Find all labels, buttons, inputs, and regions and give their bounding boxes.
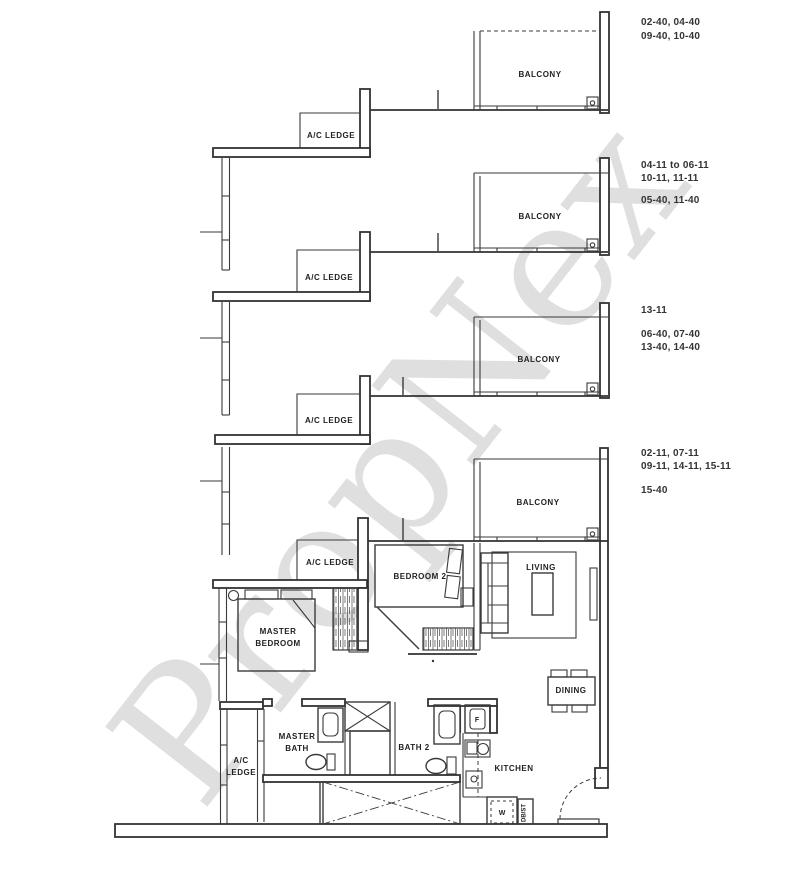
master-bath-label-1: MASTER <box>279 732 316 741</box>
anno-g3-line3: 13-40, 14-40 <box>641 342 700 353</box>
master-bedroom-top-wall <box>213 580 367 588</box>
db-st-label: DB/ST <box>522 804 528 822</box>
entrance <box>558 768 608 825</box>
balcony-3-label: BALCONY <box>517 355 560 364</box>
mb-bed-fold <box>293 600 315 628</box>
living-label: LIVING <box>526 563 556 572</box>
master-bedroom-label-1: MASTER <box>260 627 297 636</box>
dining-area: DINING <box>548 670 595 712</box>
master-bath-label-2: BATH <box>285 744 309 753</box>
balcony-1-fixture <box>587 97 598 109</box>
bedroom2-label: BEDROOM 2 <box>394 572 447 581</box>
mbath-door-jamb <box>263 699 272 706</box>
dining-chair-4 <box>572 705 587 712</box>
bath2-cistern <box>447 757 456 774</box>
right-wall-4 <box>600 448 608 768</box>
mbath-toilet <box>306 755 326 770</box>
floorplan-page: PropNex BALCONY A/C LEDGE <box>0 0 800 877</box>
ac-ledge-2-outline <box>297 250 360 292</box>
anno-g1-line2: 09-40, 10-40 <box>641 31 700 42</box>
wall-post-2 <box>360 232 370 301</box>
bath2-toilet <box>426 759 446 774</box>
bedroom-2: BEDROOM 2 <box>375 543 480 662</box>
master-bedroom: MASTER BEDROOM <box>200 588 368 701</box>
corridor-dot <box>432 660 434 662</box>
bath-2: BATH 2 <box>398 705 460 774</box>
b2-wardrobe <box>423 628 473 650</box>
shower-box <box>350 731 390 780</box>
anno-g2-line3: 05-40, 11-40 <box>641 195 700 206</box>
thick-wall-2 <box>213 292 370 301</box>
section-1-outline: BALCONY A/C LEDGE <box>213 12 609 157</box>
mbath-sink <box>323 713 338 736</box>
ac-ledge-3-label: A/C LEDGE <box>305 416 353 425</box>
anno-g4-line1: 02-11, 07-11 <box>641 448 699 459</box>
ac-ledge-4-label: A/C LEDGE <box>306 558 354 567</box>
kitchen-label: KITCHEN <box>494 764 533 773</box>
b2-pillow-1 <box>447 548 463 573</box>
balcony-2-label: BALCONY <box>518 212 561 221</box>
floorplan-drawing: BALCONY A/C LEDGE BALCONY A/C LEDGE <box>0 0 800 877</box>
bath-bottom-wall <box>263 775 460 782</box>
balcony-2-fixture <box>587 239 598 251</box>
ledge-top-wall <box>220 702 263 709</box>
thick-wall-1 <box>213 148 370 157</box>
kitchen-sink-bowl <box>467 742 477 754</box>
anno-g2-line1: 04-11 to 06-11 <box>641 160 709 171</box>
anno-g3-line2: 06-40, 07-40 <box>641 329 700 340</box>
ac-ledge-2-label: A/C LEDGE <box>305 273 353 282</box>
balcony-4-label: BALCONY <box>516 498 559 507</box>
ac-ledge-3-outline <box>297 394 360 435</box>
mb-pillow-1 <box>245 590 278 599</box>
mbath-cistern <box>327 754 335 770</box>
unit-annotations: 02-40, 04-40 09-40, 10-40 04-11 to 06-11… <box>641 17 731 496</box>
b2-door-leaf <box>377 607 419 649</box>
kitchen-hob-burner <box>471 776 477 782</box>
living-sofa <box>481 553 508 633</box>
anno-g2-line2: 10-11, 11-11 <box>641 173 699 184</box>
anno-g4-line2: 09-11, 14-11, 15-11 <box>641 461 731 472</box>
master-bedroom-label-2: BEDROOM <box>255 639 300 648</box>
ac-ledge-bottom: A/C LEDGE <box>221 709 265 824</box>
living-room: LIVING <box>481 552 597 638</box>
kitchen-sink-round <box>478 744 489 755</box>
bath2-sink <box>439 711 455 738</box>
dining-chair-1 <box>551 670 567 677</box>
wall-post-3 <box>360 376 370 444</box>
balcony-1-label: BALCONY <box>518 70 561 79</box>
section-2-outline: BALCONY A/C LEDGE <box>200 158 609 301</box>
living-coffee-table <box>532 573 553 615</box>
balcony-3-fixture <box>587 383 598 395</box>
kitchen-hob <box>466 771 482 788</box>
right-wall-1 <box>600 12 609 113</box>
mb-corner-fixture <box>229 591 239 601</box>
b2-pillow-2 <box>445 575 461 598</box>
master-bath: MASTER BATH <box>279 708 345 775</box>
section-3-outline: BALCONY A/C LEDGE <box>200 302 609 444</box>
ac-ledge-1-label: A/C LEDGE <box>307 131 355 140</box>
ac-ledge-bottom-label-2: LEDGE <box>226 768 256 777</box>
fridge-side-wall <box>490 706 497 733</box>
unit-plan: BALCONY A/C LEDGE MASTER BEDROOM <box>115 447 608 837</box>
bottom-wall <box>115 824 607 837</box>
door-jamb-stub <box>595 768 608 788</box>
mbath-top-wall <box>302 699 345 706</box>
balcony-4-fixture <box>587 528 598 540</box>
thick-wall-3 <box>215 435 370 444</box>
anno-g3-line1: 13-11 <box>641 305 667 316</box>
ac-ledge-bottom-label-1: A/C <box>233 756 248 765</box>
dining-chair-2 <box>571 670 587 677</box>
anno-g1-line1: 02-40, 04-40 <box>641 17 700 28</box>
wall-post-1 <box>360 89 370 157</box>
fridge-label: F <box>475 717 480 724</box>
dining-chair-3 <box>552 705 567 712</box>
dining-label: DINING <box>556 686 587 695</box>
living-tv-console <box>590 568 597 620</box>
mb-pillow-2 <box>281 590 312 599</box>
bath2-label: BATH 2 <box>398 743 429 752</box>
wall-post-4 <box>358 518 368 588</box>
washer-label: W <box>499 810 506 817</box>
anno-g4-line3: 15-40 <box>641 485 668 496</box>
